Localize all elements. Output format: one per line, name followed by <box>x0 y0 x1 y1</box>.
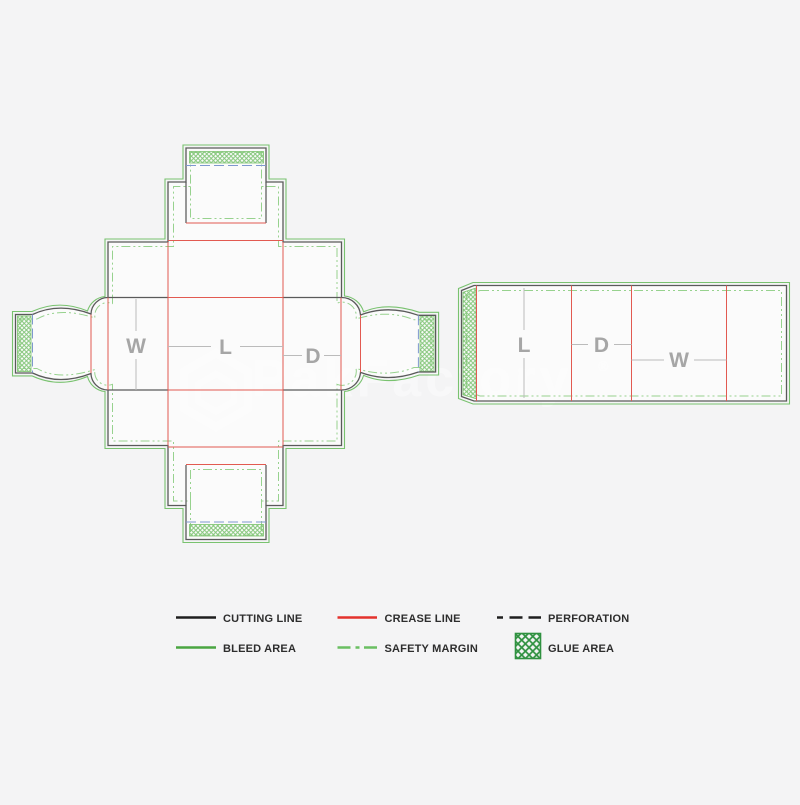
svg-text:D: D <box>305 345 320 368</box>
svg-text:L: L <box>219 336 232 359</box>
svg-text:BLEED AREA: BLEED AREA <box>223 643 296 655</box>
svg-text:CUTTING LINE: CUTTING LINE <box>223 613 302 625</box>
svg-text:PERFORATION: PERFORATION <box>548 613 629 625</box>
svg-text:®: ® <box>598 358 609 374</box>
svg-text:W: W <box>669 349 689 372</box>
svg-text:SAFETY MARGIN: SAFETY MARGIN <box>385 643 478 655</box>
svg-text:GLUE AREA: GLUE AREA <box>548 643 614 655</box>
svg-text:CREASE LINE: CREASE LINE <box>385 613 461 625</box>
svg-text:W: W <box>126 335 146 358</box>
svg-text:L: L <box>518 334 531 357</box>
svg-text:D: D <box>594 334 609 357</box>
